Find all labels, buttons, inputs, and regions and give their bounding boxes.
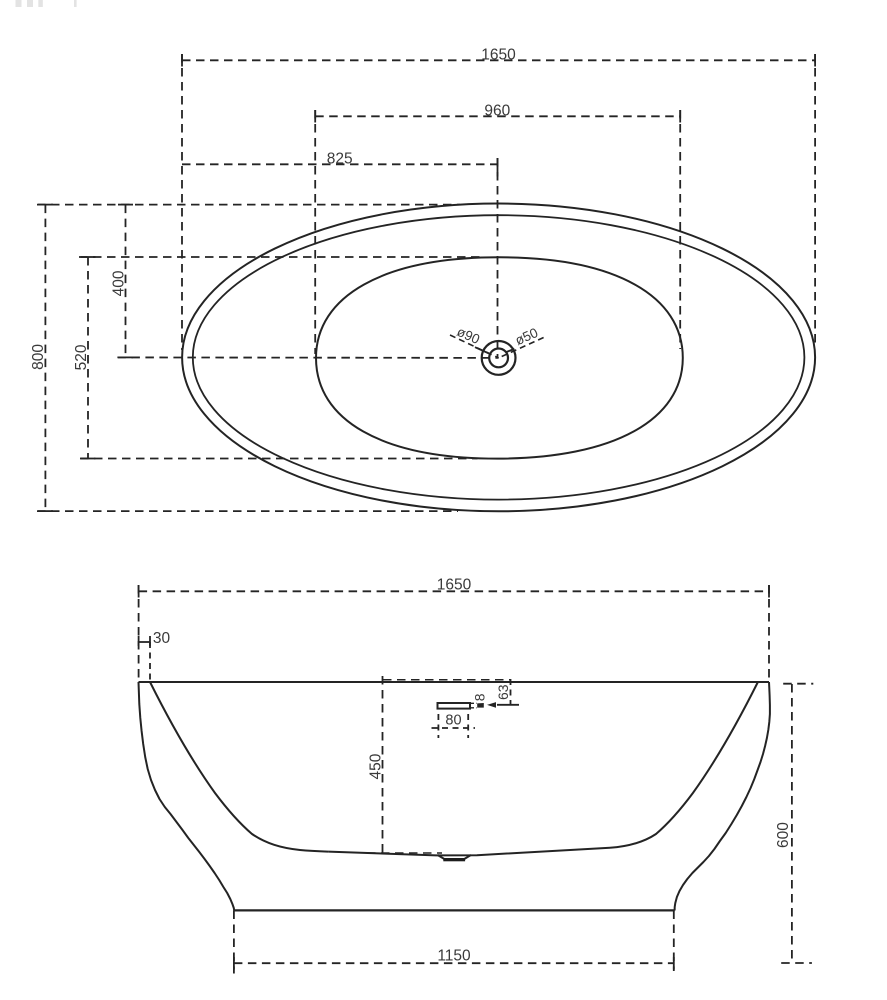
svg-text:520: 520 bbox=[73, 344, 90, 370]
svg-text:960: 960 bbox=[484, 102, 510, 119]
svg-text:63: 63 bbox=[495, 684, 511, 700]
svg-text:ø50: ø50 bbox=[513, 325, 540, 348]
svg-text:1650: 1650 bbox=[437, 577, 472, 594]
svg-text:825: 825 bbox=[327, 150, 353, 167]
svg-text:80: 80 bbox=[445, 713, 461, 729]
svg-text:800: 800 bbox=[30, 344, 47, 370]
svg-text:8: 8 bbox=[471, 693, 487, 701]
svg-text:600: 600 bbox=[775, 822, 792, 848]
svg-text:30: 30 bbox=[153, 630, 171, 647]
svg-text:400: 400 bbox=[111, 270, 128, 296]
svg-text:1650: 1650 bbox=[481, 46, 516, 63]
svg-text:450: 450 bbox=[368, 753, 385, 779]
svg-text:1150: 1150 bbox=[437, 948, 471, 965]
svg-text:ø90: ø90 bbox=[455, 324, 482, 347]
